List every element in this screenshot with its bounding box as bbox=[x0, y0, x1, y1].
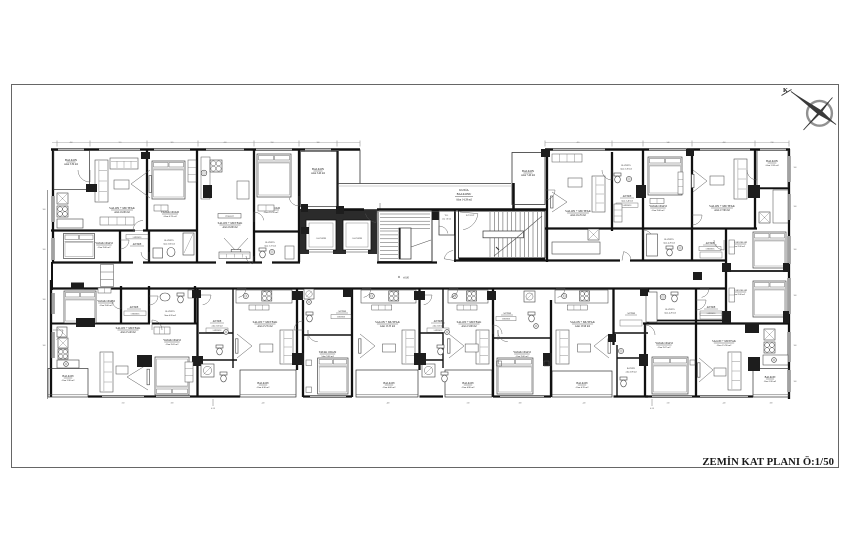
svg-text:Alan 16.00 m2: Alan 16.00 m2 bbox=[114, 211, 130, 214]
svg-text:300: 300 bbox=[794, 381, 797, 383]
svg-text:ANTRE: ANTRE bbox=[213, 320, 222, 323]
svg-text:Alan 7.40 m2: Alan 7.40 m2 bbox=[521, 174, 536, 177]
svg-text:▲: ▲ bbox=[398, 275, 401, 279]
svg-text:Alan 3.30 m2: Alan 3.30 m2 bbox=[620, 168, 632, 171]
svg-text:BANYO: BANYO bbox=[166, 310, 175, 313]
svg-text:BALKON: BALKON bbox=[766, 160, 778, 163]
svg-text:Alan 4.00 m2: Alan 4.00 m2 bbox=[383, 386, 397, 389]
svg-text:SALON + MUTFAK: SALON + MUTFAK bbox=[570, 320, 596, 324]
svg-text:Alan 15.35 m2: Alan 15.35 m2 bbox=[380, 325, 396, 328]
svg-text:BALKON: BALKON bbox=[62, 375, 73, 378]
svg-text:SALON + MUTFAK: SALON + MUTFAK bbox=[457, 320, 483, 324]
svg-text:Alan 4.20 m2: Alan 4.20 m2 bbox=[664, 312, 676, 315]
svg-text:Alan 9.00 m2: Alan 9.00 m2 bbox=[98, 246, 112, 249]
svg-text:S.MERMER: S.MERMER bbox=[707, 313, 717, 315]
svg-text:Alan 15.35 m2: Alan 15.35 m2 bbox=[257, 325, 273, 328]
svg-text:SALON + MUTFAK: SALON + MUTFAK bbox=[375, 320, 401, 324]
svg-text:300: 300 bbox=[794, 249, 797, 251]
svg-text:430: 430 bbox=[262, 403, 265, 405]
svg-text:Alan 4.20 m2: Alan 4.20 m2 bbox=[164, 314, 176, 317]
svg-text:Alan 15.90 m2: Alan 15.90 m2 bbox=[575, 325, 591, 328]
svg-text:ANTRE: ANTRE bbox=[623, 195, 632, 198]
svg-text:S.MERMER: S.MERMER bbox=[706, 249, 716, 251]
svg-text:SALON + MUTFAK: SALON + MUTFAK bbox=[712, 340, 736, 343]
svg-text:Alan 3.90 m2: Alan 3.90 m2 bbox=[62, 379, 76, 382]
svg-text:S.MERMER: S.MERMER bbox=[131, 313, 141, 315]
svg-text:Alan 9.00 m2: Alan 9.00 m2 bbox=[652, 209, 666, 212]
svg-text:BALKON: BALKON bbox=[765, 376, 776, 379]
svg-text:ANTRE: ANTRE bbox=[503, 312, 512, 315]
svg-text:Alan 9.00 m2: Alan 9.00 m2 bbox=[321, 355, 335, 358]
svg-text:Alan 3.90 m2: Alan 3.90 m2 bbox=[764, 380, 776, 383]
svg-text:BANYO: BANYO bbox=[665, 238, 674, 241]
svg-text:300: 300 bbox=[770, 403, 773, 405]
svg-text:455: 455 bbox=[577, 142, 580, 144]
svg-text:S.MERMER: S.MERMER bbox=[133, 237, 143, 239]
svg-text:300: 300 bbox=[794, 167, 797, 169]
svg-text:±0.00: ±0.00 bbox=[403, 277, 410, 280]
svg-text:ZEMİN KAT PLANI Ö:1/50: ZEMİN KAT PLANI Ö:1/50 bbox=[702, 455, 834, 468]
svg-text:BANYO: BANYO bbox=[622, 164, 631, 167]
svg-text:ANTRE: ANTRE bbox=[627, 312, 636, 315]
svg-text:BALKON: BALKON bbox=[257, 382, 268, 385]
svg-text:BALKON: BALKON bbox=[312, 167, 325, 171]
svg-text:ASANSÖR: ASANSÖR bbox=[352, 237, 363, 240]
svg-text:Alan 1.60 m2: Alan 1.60 m2 bbox=[442, 218, 451, 221]
svg-text:ANTRE: ANTRE bbox=[434, 320, 443, 323]
svg-text:300: 300 bbox=[43, 299, 46, 301]
svg-text:SALON + MUTFAK: SALON + MUTFAK bbox=[709, 204, 735, 208]
svg-text:300: 300 bbox=[43, 209, 46, 211]
svg-text:BALKON: BALKON bbox=[65, 158, 78, 162]
svg-text:ANTRE: ANTRE bbox=[133, 243, 142, 246]
svg-text:Alan 3.40 m2: Alan 3.40 m2 bbox=[621, 200, 633, 203]
svg-text:Alan 10.50 m2: Alan 10.50 m2 bbox=[264, 211, 279, 214]
svg-text:BALKON: BALKON bbox=[576, 382, 587, 385]
svg-text:Alan 3.60 m2: Alan 3.60 m2 bbox=[163, 243, 175, 246]
svg-text:YATAK ODASI: YATAK ODASI bbox=[655, 342, 673, 345]
svg-text:Alan 16.90 m2: Alan 16.90 m2 bbox=[222, 226, 238, 229]
svg-text:BANYO: BANYO bbox=[627, 367, 636, 370]
svg-text:Alan 9.00 m2: Alan 9.00 m2 bbox=[733, 245, 745, 248]
svg-text:Alan 15.90 m2: Alan 15.90 m2 bbox=[717, 344, 732, 347]
svg-text:BANYO: BANYO bbox=[666, 308, 675, 311]
svg-text:BALKON: BALKON bbox=[462, 382, 473, 385]
svg-text:SALON + MUTFAK: SALON + MUTFAK bbox=[565, 209, 591, 213]
svg-text:410: 410 bbox=[224, 142, 227, 144]
svg-text:SALON + MUTFAK: SALON + MUTFAK bbox=[218, 221, 244, 225]
svg-text:SALON + MUTFAK: SALON + MUTFAK bbox=[116, 326, 142, 330]
svg-text:ANTRE: ANTRE bbox=[338, 310, 347, 313]
svg-text:ANTRE: ANTRE bbox=[130, 306, 139, 309]
svg-text:BALKONU: BALKONU bbox=[457, 192, 472, 196]
svg-text:230: 230 bbox=[771, 142, 774, 144]
svg-text:KAT HOLÜ: KAT HOLÜ bbox=[466, 214, 475, 217]
svg-text:300: 300 bbox=[794, 345, 797, 347]
svg-text:YATAK ODASI: YATAK ODASI bbox=[649, 205, 667, 208]
svg-text:Alan 4.30 m2: Alan 4.30 m2 bbox=[257, 386, 271, 389]
svg-text:Alan 14.28 m2: Alan 14.28 m2 bbox=[456, 199, 473, 202]
svg-text:Alan 9.00 m2: Alan 9.00 m2 bbox=[516, 355, 530, 358]
svg-text:300: 300 bbox=[794, 295, 797, 297]
svg-text:Alan 9.00 m2: Alan 9.00 m2 bbox=[100, 304, 114, 307]
svg-text:S.MERMER: S.MERMER bbox=[213, 330, 223, 332]
svg-text:S.MERMER: S.MERMER bbox=[623, 205, 633, 207]
svg-text:ANTRE: ANTRE bbox=[706, 242, 715, 245]
svg-text:YATAK ODASI: YATAK ODASI bbox=[513, 351, 531, 354]
svg-text:Alan 4.70 m2: Alan 4.70 m2 bbox=[576, 386, 590, 389]
svg-text:YATAK ODASI: YATAK ODASI bbox=[319, 351, 337, 354]
svg-text:330: 330 bbox=[467, 403, 470, 405]
svg-text:Alan 16.25 m2: Alan 16.25 m2 bbox=[570, 214, 586, 217]
svg-text:Alan 3.39 m2: Alan 3.39 m2 bbox=[64, 163, 79, 166]
svg-text:YATAK ODASI: YATAK ODASI bbox=[95, 242, 113, 245]
svg-text:400: 400 bbox=[387, 403, 390, 405]
svg-text:BALKON: BALKON bbox=[522, 169, 535, 173]
svg-text:Alan 4.70 m2: Alan 4.70 m2 bbox=[163, 215, 177, 218]
svg-text:300: 300 bbox=[171, 403, 174, 405]
svg-text:Alan 4.90 m2: Alan 4.90 m2 bbox=[462, 386, 476, 389]
svg-text:BALKON: BALKON bbox=[383, 382, 394, 385]
svg-text:BANYO: BANYO bbox=[165, 239, 174, 242]
svg-text:300: 300 bbox=[317, 142, 320, 144]
svg-text:365: 365 bbox=[171, 142, 174, 144]
svg-text:SALON + MUTFAK: SALON + MUTFAK bbox=[253, 320, 279, 324]
svg-text:Alan 17.90 m2: Alan 17.90 m2 bbox=[714, 209, 730, 212]
svg-text:Alan 3.40 m2: Alan 3.40 m2 bbox=[311, 172, 326, 175]
svg-text:Alan 9.02 m2: Alan 9.02 m2 bbox=[166, 343, 180, 346]
svg-text:350: 350 bbox=[122, 403, 125, 405]
svg-text:Alan 1.72 m2: Alan 1.72 m2 bbox=[264, 245, 276, 248]
svg-text:S.MERMER: S.MERMER bbox=[434, 330, 444, 332]
svg-text:S.MERMER: S.MERMER bbox=[337, 317, 346, 319]
svg-text:300: 300 bbox=[43, 249, 46, 251]
svg-text:Alan 1.60 m2: Alan 1.60 m2 bbox=[211, 325, 222, 328]
svg-text:300: 300 bbox=[43, 345, 46, 347]
svg-text:350: 350 bbox=[271, 142, 274, 144]
svg-text:430: 430 bbox=[583, 403, 586, 405]
svg-text:ASANSÖR: ASANSÖR bbox=[316, 237, 327, 240]
svg-text:SALON + MUTFAK: SALON + MUTFAK bbox=[109, 206, 135, 210]
svg-text:S.MERMER: S.MERMER bbox=[502, 319, 511, 321]
svg-text:Alan 1.60 m2: Alan 1.60 m2 bbox=[432, 325, 443, 328]
svg-text:BANYO: BANYO bbox=[266, 241, 275, 244]
svg-text:Alan 4.20 m2: Alan 4.20 m2 bbox=[663, 242, 675, 245]
svg-text:450: 450 bbox=[723, 142, 726, 144]
svg-text:330: 330 bbox=[667, 403, 670, 405]
svg-text:430: 430 bbox=[723, 403, 726, 405]
svg-text:YÜKSELTİ: YÜKSELTİ bbox=[225, 215, 234, 218]
svg-text:Alan 13.90 m2: Alan 13.90 m2 bbox=[461, 325, 477, 328]
svg-text:Alan 3.90 m2: Alan 3.90 m2 bbox=[765, 164, 779, 167]
svg-text:Alan 3.90 m2: Alan 3.90 m2 bbox=[625, 370, 636, 373]
svg-text:Y.O.: Y.O. bbox=[445, 215, 449, 217]
svg-text:YATAK ODASI: YATAK ODASI bbox=[161, 211, 179, 214]
svg-text:Alan 9.07 m2: Alan 9.07 m2 bbox=[658, 346, 672, 349]
svg-text:Alan 9.00 m2: Alan 9.00 m2 bbox=[733, 293, 745, 296]
svg-text:300: 300 bbox=[794, 206, 797, 208]
svg-text:ANTRE: ANTRE bbox=[707, 306, 716, 309]
svg-text:355: 355 bbox=[119, 142, 122, 144]
svg-text:Alan 15.40 m2: Alan 15.40 m2 bbox=[120, 331, 136, 334]
svg-text:YATAK ODASI: YATAK ODASI bbox=[163, 339, 181, 342]
svg-text:450: 450 bbox=[70, 142, 73, 144]
svg-text:300: 300 bbox=[519, 403, 522, 405]
svg-text:340: 340 bbox=[667, 142, 670, 144]
